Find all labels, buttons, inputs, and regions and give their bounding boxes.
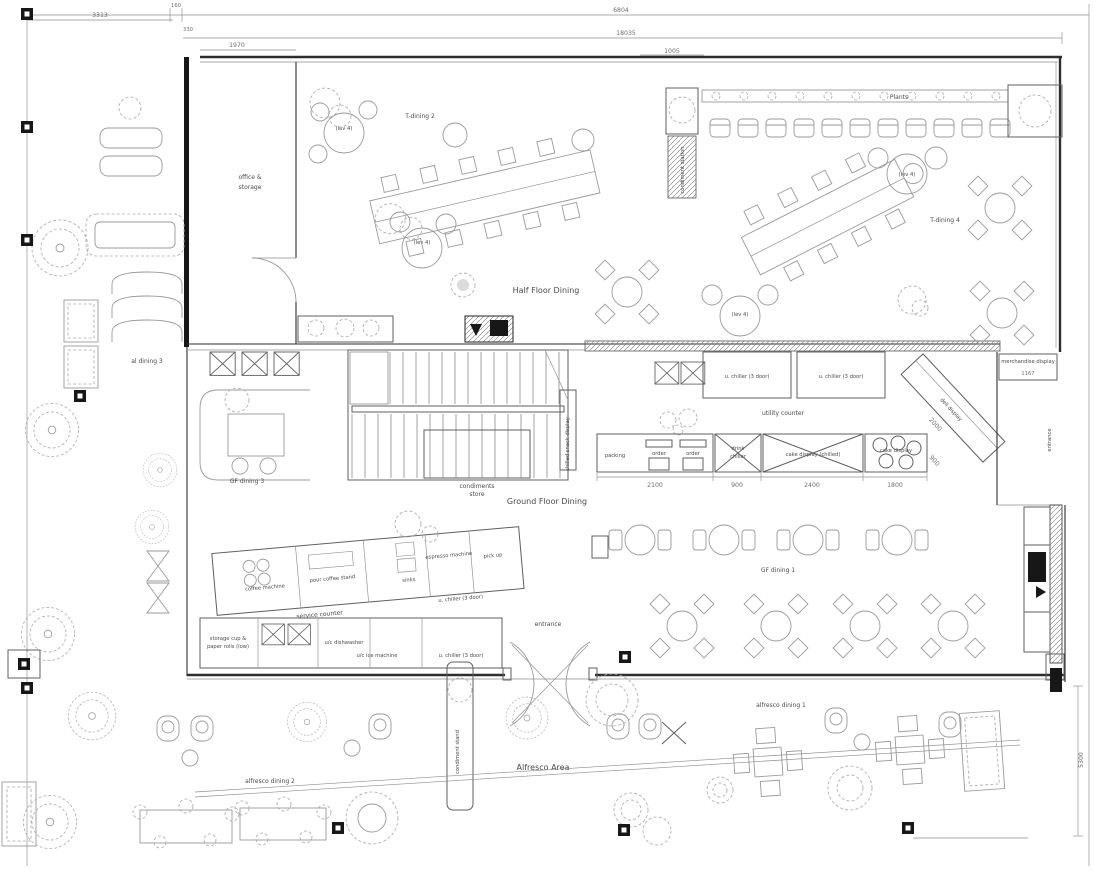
front-counter: packing order order drink chiller cake d… bbox=[597, 354, 1005, 489]
gf-dining-1-label: GF dining 1 bbox=[761, 567, 795, 574]
right-entrance-label: entrance bbox=[1047, 428, 1053, 451]
lev4-label-3: (lev 4) bbox=[732, 312, 749, 318]
dim-gap-160: 160 bbox=[171, 3, 181, 9]
ground-floor-dining-label: Ground Floor Dining bbox=[507, 497, 587, 506]
dim-entry-offset: 1005 bbox=[664, 48, 680, 55]
staircase: condiments store bbox=[348, 350, 568, 498]
half-floor-dining-label: Half Floor Dining bbox=[513, 286, 580, 295]
office-storage-room: office & storage bbox=[238, 62, 296, 344]
order-label-2: order bbox=[686, 451, 701, 457]
dim-counter-packing: 2100 bbox=[647, 482, 663, 489]
dim-overall-top: 6804 bbox=[613, 7, 629, 14]
t-dining-2-label: T-dining 2 bbox=[404, 113, 435, 120]
utility-counter-label: utility counter bbox=[762, 410, 805, 417]
storage-cups-label-2: paper rolls (low) bbox=[207, 644, 249, 650]
storage-cups-label-1: storage cup & bbox=[210, 636, 246, 642]
condiments-store-label-2: store bbox=[469, 491, 484, 498]
pour-coffee-stand-label: pour coffee stand bbox=[309, 574, 355, 584]
gf-dining-3-label: GF dining 3 bbox=[230, 478, 264, 485]
merchandise-display-label: merchandise display bbox=[1001, 359, 1055, 365]
dim-building-width: 18035 bbox=[616, 30, 636, 37]
drink-chiller-label-1: drink bbox=[731, 446, 744, 452]
half-floor-dining: Half Floor Dining T-dining 2 T-dining 4 … bbox=[298, 85, 1062, 345]
plants-label: Plants bbox=[890, 94, 908, 101]
dim-left-setback: 3313 bbox=[92, 12, 108, 19]
alfresco-dining-1-label: alfresco dining 1 bbox=[756, 702, 806, 709]
dim-office-width: 1970 bbox=[229, 42, 245, 49]
alfresco-area-label: Alfresco Area bbox=[517, 763, 570, 772]
lev4-label-1: (lev 4) bbox=[336, 126, 353, 132]
u-chiller-label-1: u. chiller (3 door) bbox=[725, 374, 770, 380]
dim-deli-depth: 900 bbox=[928, 454, 941, 467]
order-label-1: order bbox=[652, 451, 667, 457]
office-label-1: office & bbox=[238, 174, 261, 181]
packing-label: packing bbox=[605, 453, 625, 459]
u-chiller-label-4: u. chiller (3 door) bbox=[439, 653, 484, 659]
coffee-machine-label: coffee machine bbox=[245, 583, 285, 592]
gf-dining-3-booth: GF dining 3 bbox=[200, 352, 310, 485]
condiment-stand-label: condiment stand bbox=[455, 730, 461, 774]
floor-plan-drawing: 6804 18035 1005 3313 160 330 1970 5300 o… bbox=[0, 0, 1094, 874]
dim-gap-330: 330 bbox=[183, 27, 193, 33]
ground-floor-dining: Ground Floor Dining GF dining 1 bbox=[507, 497, 985, 663]
uc-dishwasher-label: u/c dishwasher bbox=[325, 640, 365, 646]
pick-up-label: pick up bbox=[483, 552, 503, 560]
t-dining-4-label: T-dining 4 bbox=[929, 217, 960, 224]
cake-display-chilled-label: cake display (chilled) bbox=[786, 452, 841, 458]
dim-alfresco-depth: 5300 bbox=[1078, 752, 1085, 768]
dim-counter-cake-chilled: 2400 bbox=[804, 482, 820, 489]
building-walls bbox=[184, 57, 1065, 682]
dim-counter-drink-chiller: 900 bbox=[731, 482, 743, 489]
alfresco-dining-2-label: alfresco dining 2 bbox=[245, 778, 295, 785]
drink-chiller-label-2: chiller bbox=[730, 454, 747, 460]
right-storefront bbox=[1024, 505, 1064, 692]
cake-display-label: cake display bbox=[880, 448, 912, 454]
uc-ice-machine-label: u/c ice machine bbox=[357, 653, 398, 659]
service-counter-label: service counter bbox=[296, 609, 343, 620]
u-chiller-label-2: u. chiller (3 door) bbox=[819, 374, 864, 380]
dim-merch-width: 1167 bbox=[1021, 371, 1034, 377]
entrance-label: entrance bbox=[535, 621, 562, 628]
alfresco-area: Alfresco Area alfresco dining 2 alfresco… bbox=[2, 697, 1020, 848]
condiments-store-label-1: condiments bbox=[459, 483, 494, 490]
condiment-station-label: condiment station bbox=[680, 146, 686, 193]
service-area: coffee machine pour coffee stand sinks e… bbox=[200, 511, 608, 668]
main-entrance: entrance condiment stand bbox=[447, 621, 638, 810]
right-entrance-vestibule: merchandise display 1167 entrance bbox=[997, 352, 1060, 505]
dim-deli-length: 2000 bbox=[927, 417, 943, 433]
chilled-snack-display-label: chilled snack display bbox=[565, 417, 571, 471]
sinks-label: sinks bbox=[402, 577, 416, 584]
al-dining-3-label: al dining 3 bbox=[131, 358, 163, 365]
office-label-2: storage bbox=[239, 184, 262, 191]
espresso-machine-label: espresso machine bbox=[425, 551, 472, 561]
dim-counter-cake: 1800 bbox=[887, 482, 903, 489]
floor-plan-sheet: 6804 18035 1005 3313 160 330 1970 5300 o… bbox=[0, 0, 1094, 874]
